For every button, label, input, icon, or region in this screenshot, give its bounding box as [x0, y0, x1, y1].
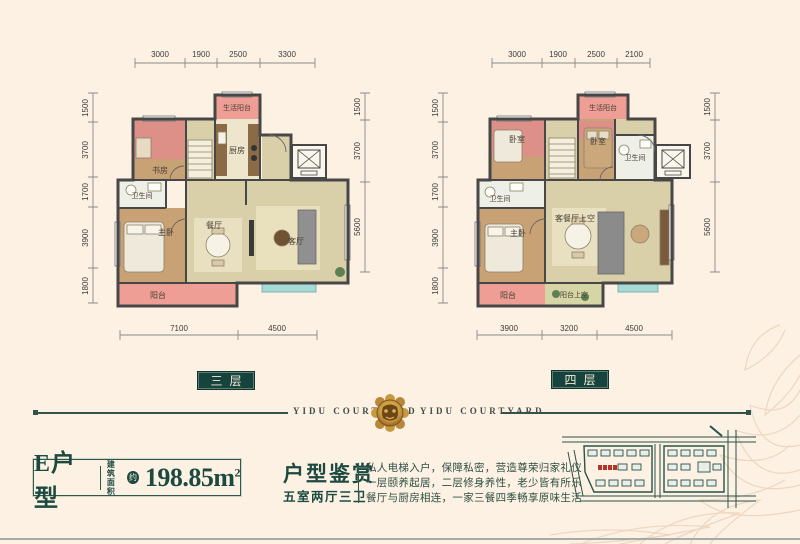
- svg-text:3700: 3700: [431, 141, 440, 159]
- room-label: 卧室: [509, 134, 525, 144]
- description-line: 一层颐养起居，二层修身养性，老少皆有所乐: [366, 476, 582, 491]
- svg-text:1700: 1700: [81, 183, 90, 201]
- floor-tag-third: 三层: [197, 371, 255, 390]
- brand-medallion-icon: [368, 391, 412, 435]
- svg-text:2500: 2500: [587, 50, 605, 59]
- approx-badge: 约: [127, 471, 139, 484]
- room-label: 主卧: [510, 228, 526, 238]
- svg-text:3300: 3300: [278, 50, 296, 59]
- description-line: 私人电梯入户，保障私密，营造尊荣归家礼仪: [366, 461, 582, 476]
- area-value: 198.85m2: [145, 463, 240, 493]
- svg-text:1900: 1900: [192, 50, 210, 59]
- svg-text:1800: 1800: [81, 277, 90, 295]
- svg-text:1900: 1900: [549, 50, 567, 59]
- divider-line-right: [502, 412, 748, 414]
- floorplan-poster: 生活阳台 书房 厨房 卫生间 主卧 餐厅 客厅 阳台 3000 1900 250…: [0, 0, 800, 544]
- svg-text:1800: 1800: [431, 277, 440, 295]
- unit-info-box: E户型 建筑 面积 约 198.85m2: [33, 459, 241, 496]
- svg-text:1500: 1500: [81, 99, 90, 117]
- room-label: 生活阳台: [589, 103, 617, 112]
- area-unit: m: [213, 463, 234, 492]
- floor-tag-label: 三层: [210, 372, 248, 389]
- elevator: [292, 145, 326, 178]
- svg-text:3900: 3900: [500, 324, 518, 333]
- area-label: 建筑 面积: [107, 460, 121, 496]
- svg-text:3700: 3700: [703, 142, 712, 160]
- room-label: 阳台上空: [560, 290, 588, 299]
- site-map: [560, 424, 760, 512]
- unit-name: E户型: [34, 443, 94, 513]
- svg-text:7100: 7100: [170, 324, 188, 333]
- svg-text:1500: 1500: [703, 98, 712, 116]
- room-label: 客餐厅上空: [555, 213, 595, 223]
- divider-end-cap: [746, 410, 751, 415]
- floor-tag-fourth: 四层: [551, 370, 609, 389]
- area-label-top: 建筑: [107, 460, 121, 478]
- svg-text:4500: 4500: [268, 324, 286, 333]
- area-exponent: 2: [235, 465, 241, 479]
- svg-text:2500: 2500: [229, 50, 247, 59]
- svg-text:3000: 3000: [508, 50, 526, 59]
- svg-text:5600: 5600: [353, 218, 362, 236]
- svg-text:3900: 3900: [81, 229, 90, 247]
- room-label: 卧室: [590, 136, 606, 146]
- room-label: 卫生间: [132, 191, 153, 200]
- svg-text:3900: 3900: [431, 229, 440, 247]
- room-label: 餐厅: [206, 221, 222, 230]
- room-label: 客厅: [288, 236, 304, 246]
- floorplan-fourth-floor: 生活阳台 卧室 卧室 卫生间 卫生间 主卧 客餐厅上空 阳台 阳台上空 3000…: [431, 50, 720, 340]
- svg-text:1500: 1500: [353, 98, 362, 116]
- room-label: 厨房: [229, 145, 245, 155]
- svg-text:4500: 4500: [625, 324, 643, 333]
- elevator: [656, 145, 690, 178]
- room-label: 卫生间: [490, 194, 511, 203]
- floor-tag-label: 四层: [564, 371, 602, 388]
- room-label: 阳台: [500, 290, 516, 300]
- svg-text:2100: 2100: [625, 50, 643, 59]
- svg-text:3000: 3000: [151, 50, 169, 59]
- room-label: 卫生间: [625, 153, 646, 162]
- appreciation-divider: [358, 463, 359, 503]
- bottom-border: [0, 538, 800, 540]
- brand-wordmark-right: YIDU COURTYARD: [420, 406, 545, 416]
- room-label: 书房: [152, 165, 168, 175]
- svg-text:1700: 1700: [431, 183, 440, 201]
- svg-text:5600: 5600: [703, 218, 712, 236]
- room-label: 阳台: [150, 290, 166, 300]
- divider-line-left: [38, 412, 288, 414]
- highlighted-building: [598, 465, 617, 470]
- svg-text:3700: 3700: [353, 142, 362, 160]
- appreciation-subtitle: 五室两厅三卫: [283, 486, 367, 505]
- appreciation-title: 户型鉴赏: [283, 458, 375, 488]
- svg-text:1500: 1500: [431, 99, 440, 117]
- appreciation-description: 私人电梯入户，保障私密，营造尊荣归家礼仪 一层颐养起居，二层修身养性，老少皆有所…: [366, 461, 582, 506]
- room-label: 主卧: [158, 227, 174, 237]
- room-label: 生活阳台: [223, 103, 251, 112]
- svg-text:3200: 3200: [560, 324, 578, 333]
- room-fills: [118, 95, 348, 306]
- svg-text:3700: 3700: [81, 141, 90, 159]
- floorplan-third-floor: 生活阳台 书房 厨房 卫生间 主卧 餐厅 客厅 阳台 3000 1900 250…: [81, 50, 370, 340]
- area-label-bottom: 面积: [107, 478, 121, 496]
- area-number: 198.85: [145, 463, 214, 492]
- description-line: 餐厅与厨房相连，一家三餐四季畅享原味生活: [366, 491, 582, 506]
- unit-separator: [100, 466, 101, 490]
